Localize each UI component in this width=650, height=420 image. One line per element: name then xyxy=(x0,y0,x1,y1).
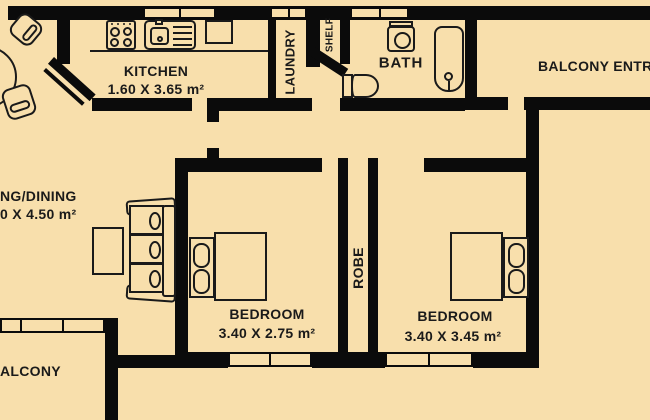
floor-plan: KITCHEN 1.60 X 3.65 m² LAUNDRY SHELF BAT… xyxy=(0,0,650,420)
window-pane xyxy=(181,9,215,17)
wall-kitchen-bottom-left xyxy=(92,98,192,111)
wall-bath-right xyxy=(465,18,477,100)
wall-kitchen-bottom-right xyxy=(214,98,272,111)
wall-bedroom1-left xyxy=(175,158,188,368)
kitchen-sink-icon xyxy=(144,20,196,50)
bed-pillow xyxy=(193,269,210,294)
bed-pillow xyxy=(193,243,210,268)
coffee-table-icon xyxy=(92,227,124,275)
bed-mattress xyxy=(214,232,267,301)
sofa-cushion xyxy=(149,270,161,288)
basin-bowl xyxy=(394,32,411,49)
wall-kitchen-left xyxy=(57,20,70,64)
window-pane xyxy=(22,320,64,331)
living-dining-label: NG/DINING xyxy=(0,188,77,204)
bathtub-icon xyxy=(434,26,464,92)
stove-knob xyxy=(129,23,131,25)
sofa-seat xyxy=(129,263,164,293)
wall-bedroom1-bottom-left xyxy=(188,352,228,368)
kitchen-counter-edge xyxy=(90,50,268,52)
bedroom2-dims: 3.40 X 3.45 m² xyxy=(405,328,502,344)
tub-faucet-stem xyxy=(448,81,450,91)
bedroom2-window xyxy=(385,352,473,367)
window-pane xyxy=(272,9,290,17)
bed-pillow xyxy=(508,269,525,294)
robe-label: ROBE xyxy=(350,247,366,289)
stove-knob xyxy=(111,23,113,25)
sofa-seat xyxy=(129,205,164,235)
wall-shelf-right xyxy=(340,18,350,64)
living-dining-dims: 0 X 4.50 m² xyxy=(0,206,76,222)
window-pane xyxy=(230,354,271,365)
shelf-label: SHELF xyxy=(325,18,336,52)
sink-tap xyxy=(155,19,163,25)
laundry-window xyxy=(270,7,307,19)
toilet-icon xyxy=(351,74,379,98)
bedroom1-window xyxy=(228,352,312,367)
wall-living-hall-upper xyxy=(207,98,219,122)
wall-hall-top-laundry xyxy=(268,98,312,111)
drainer-line xyxy=(173,26,192,28)
window-pane xyxy=(271,354,310,365)
bath-label: BATH xyxy=(379,55,424,72)
kitchen-label: KITCHEN xyxy=(124,63,188,79)
wall-bedrooms-bottom-mid xyxy=(312,352,385,368)
washbasin-icon xyxy=(387,26,415,52)
sofa-cushion xyxy=(149,212,161,230)
burner xyxy=(110,27,120,37)
window-pane xyxy=(430,354,471,365)
stove-knob xyxy=(117,23,119,25)
wall-balcony-right xyxy=(105,318,118,420)
window-pane xyxy=(145,9,181,17)
wall-laundry-left xyxy=(268,20,276,98)
drainer-line xyxy=(173,38,192,40)
drainer-line xyxy=(173,32,192,34)
kitchen-dims: 1.60 X 3.65 m² xyxy=(108,81,205,97)
bed-mattress xyxy=(450,232,503,301)
balcony-label: ALCONY xyxy=(0,363,61,379)
wall-entry-bottom-left xyxy=(465,97,508,110)
window-pane xyxy=(352,9,381,17)
stove-knob xyxy=(123,23,125,25)
kitchen-window xyxy=(143,7,216,19)
chair-back xyxy=(9,99,32,114)
balcony-entry-label: BALCONY ENTR xyxy=(538,58,650,74)
laundry-label: LAUNDRY xyxy=(283,29,298,94)
bedroom1-label: BEDROOM xyxy=(229,306,304,322)
sofa-seat xyxy=(129,234,164,264)
stove-icon xyxy=(106,20,136,50)
wall-robe-right xyxy=(368,158,378,352)
window-pane xyxy=(387,354,430,365)
bed-pillow xyxy=(508,243,525,268)
drainer-line xyxy=(173,44,192,46)
chair-back xyxy=(21,23,39,43)
sofa-back xyxy=(162,205,176,297)
bath-window xyxy=(350,7,409,19)
wall-entry-bottom-right xyxy=(524,97,650,110)
bedroom2-label: BEDROOM xyxy=(417,308,492,324)
window-pane xyxy=(64,320,104,331)
tub-faucet xyxy=(444,72,453,81)
kitchen-counter-corner xyxy=(205,20,233,44)
sink-drain xyxy=(157,36,163,42)
burner xyxy=(110,38,119,47)
bedroom1-dims: 3.40 X 2.75 m² xyxy=(219,325,316,341)
burner xyxy=(123,27,132,36)
wall-hall-bottom-right xyxy=(424,158,539,172)
wall-hall-top-bath xyxy=(340,98,465,111)
wall-bedroom2-bottom-right xyxy=(473,352,539,368)
balcony-railing xyxy=(0,318,105,333)
wall-living-bottom xyxy=(116,355,188,368)
window-pane xyxy=(290,9,306,17)
burner xyxy=(123,38,132,47)
window-pane xyxy=(2,320,22,331)
wall-hall-bottom-left xyxy=(175,158,322,172)
window-pane xyxy=(381,9,408,17)
wall-robe-left xyxy=(338,158,348,352)
sofa-cushion xyxy=(149,241,161,259)
